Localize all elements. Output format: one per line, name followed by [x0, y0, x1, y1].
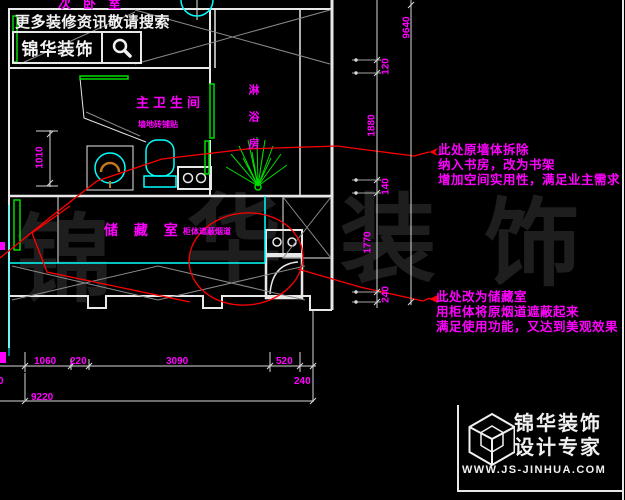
sideroom-label: 淋浴房 [245, 84, 261, 184]
annotation-line: 此处原墙体拆除 [438, 143, 620, 158]
brand-search-box: 锦华装饰 [12, 31, 142, 64]
storage-label: 储 藏 室 [104, 220, 184, 240]
dim-bottom-5: 240 [294, 376, 311, 387]
annotation-line: 此处改为储藏室 [436, 290, 618, 305]
footer-brand-line1: 锦华装饰 [514, 412, 602, 436]
dim-bottom-partial: 0 [0, 376, 4, 387]
dim-bottom-total: 9220 [31, 392, 53, 403]
dim-right-4: 1770 [363, 221, 374, 265]
search-icon [101, 33, 140, 62]
cube-logo-icon [463, 411, 515, 467]
annotation-storage-cabinet: 此处改为储藏室 用柜体将原烟道遮蔽起来 满足使用功能，又达到美观效果 [436, 290, 618, 335]
dim-bottom-1: 1060 [34, 356, 56, 367]
footer-logo-block: 锦华装饰 设计专家 WWW.JS-JINHUA.COM [457, 405, 623, 492]
dim-bottom-2: 220 [70, 356, 87, 367]
dim-right-total: 9640 [402, 6, 413, 50]
dim-right-2: 1880 [367, 104, 378, 148]
footer-website: WWW.JS-JINHUA.COM [462, 464, 606, 476]
annotation-demolish-wall: 此处原墙体拆除 纳入书房，改为书架 增加空间实用性，满足业主需求 [438, 143, 620, 188]
bathroom-note: 墙地砖铺贴 [138, 119, 178, 130]
dim-right-3: 140 [381, 170, 392, 204]
floorplan-canvas: 锦 华 装 饰 [0, 0, 625, 500]
dim-left-1: 1010 [35, 136, 46, 180]
bathroom-label: 主卫生间 [136, 92, 204, 111]
dim-right-1: 120 [381, 50, 392, 84]
dim-bottom-3: 3090 [166, 356, 188, 367]
promo-text: 更多装修资讯敬请搜索 [15, 11, 170, 32]
dim-right-5: 240 [381, 278, 392, 312]
annotation-line: 满足使用功能，又达到美观效果 [436, 320, 618, 335]
annotation-line: 增加空间实用性，满足业主需求 [438, 173, 620, 188]
storage-note: 柜体遮蔽烟道 [183, 226, 231, 237]
dim-bottom-4: 520 [276, 356, 293, 367]
footer-brand-line2: 设计专家 [514, 436, 602, 460]
annotation-line: 用柜体将原烟道遮蔽起来 [436, 305, 618, 320]
brand-box-label: 锦华装饰 [14, 33, 101, 62]
annotation-line: 纳入书房，改为书架 [438, 158, 620, 173]
